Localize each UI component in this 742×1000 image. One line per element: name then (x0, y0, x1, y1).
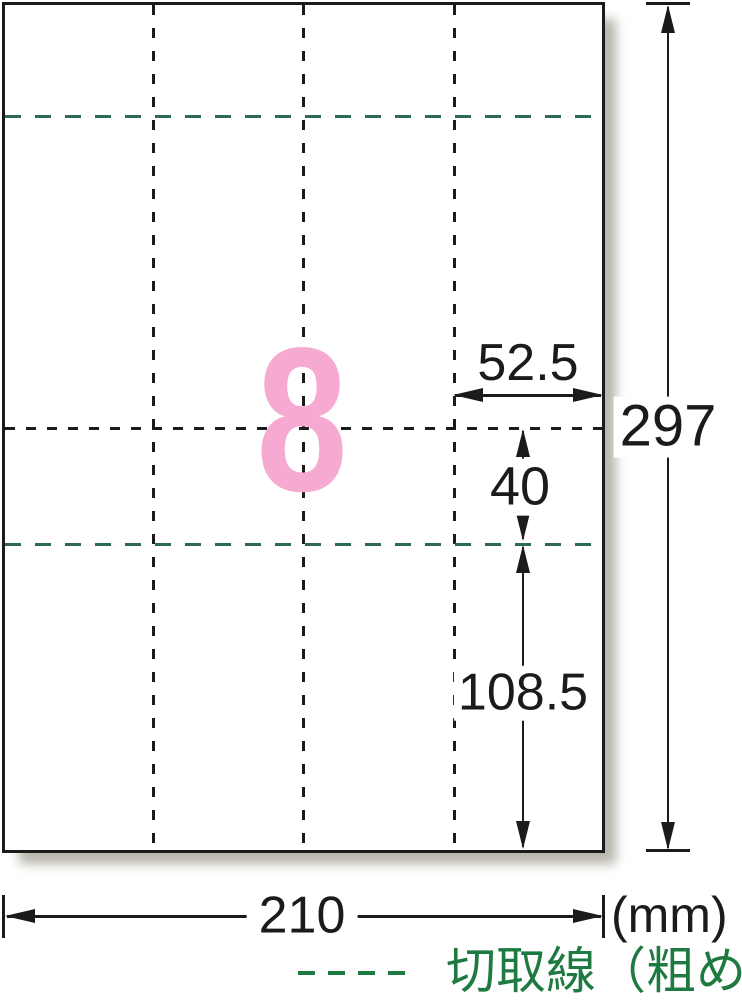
arrowhead-up-icon (516, 545, 530, 573)
legend-cut-line-sample (298, 971, 416, 975)
arrowhead-down-icon (661, 822, 675, 850)
legend-label: 切取線（粗め） (446, 944, 742, 999)
dim-cell-width-label: 52.5 (453, 336, 603, 391)
arrowhead-down-icon (516, 513, 530, 541)
arrowhead-left-icon (453, 388, 483, 402)
dim-gap-label: 40 (486, 459, 554, 516)
dim-width-tick-right (602, 895, 605, 938)
arrowhead-right-icon (573, 388, 603, 402)
arrowhead-left-icon (5, 909, 35, 923)
dim-cell-width-arrow (453, 387, 603, 403)
arrowhead-down-icon (516, 821, 530, 849)
sheet-count: 8 (256, 317, 347, 522)
arrowhead-up-icon (516, 429, 530, 457)
perforation-line-bottom (5, 543, 602, 546)
label-sheet-diagram: 8 52.5 40 108.5 297 210 (mm) 切取線（粗め） (0, 0, 742, 1000)
dim-width-label: 210 (247, 889, 358, 944)
dim-height-label: 297 (614, 397, 723, 458)
arrowhead-right-icon (573, 909, 603, 923)
dim-height-tick-bottom (646, 849, 690, 852)
arrowhead-up-icon (661, 5, 675, 33)
dim-bottom-label: 108.5 (454, 666, 592, 721)
perforation-line-top (5, 115, 602, 118)
unit-label: (mm) (611, 886, 728, 944)
